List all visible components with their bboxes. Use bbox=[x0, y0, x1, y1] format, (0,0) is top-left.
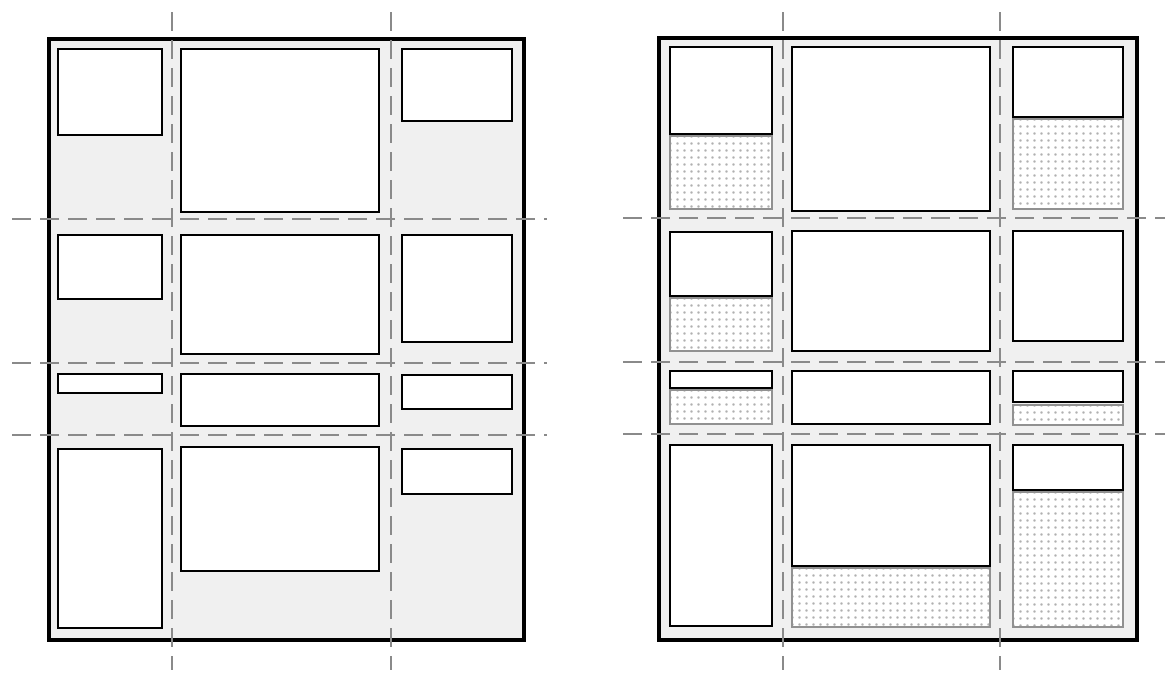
grid-line-left-horizontal-3 bbox=[12, 434, 547, 436]
grid-item-right-r2c2 bbox=[791, 230, 991, 352]
grid-item-left-r2c3 bbox=[401, 234, 513, 343]
grid-item-right-r3c2 bbox=[791, 370, 991, 425]
free-space-right-r4c2 bbox=[791, 567, 991, 628]
grid-line-left-vertical-2 bbox=[390, 12, 392, 670]
free-space-right-r1c3 bbox=[1012, 118, 1124, 210]
grid-item-right-r3c3 bbox=[1012, 370, 1124, 403]
grid-item-left-r2c1 bbox=[57, 234, 163, 300]
free-space-right-r3c1 bbox=[669, 389, 773, 425]
grid-item-right-r2c3 bbox=[1012, 230, 1124, 342]
grid-item-left-r4c1 bbox=[57, 448, 163, 629]
grid-line-left-vertical-1 bbox=[171, 12, 173, 670]
free-space-right-r1c1 bbox=[669, 135, 773, 210]
grid-line-left-horizontal-2 bbox=[12, 362, 547, 364]
grid-item-right-r4c1 bbox=[669, 444, 773, 627]
grid-line-right-vertical-1 bbox=[782, 12, 784, 670]
grid-line-left-horizontal-1 bbox=[12, 218, 547, 220]
grid-line-right-horizontal-2 bbox=[623, 361, 1165, 363]
grid-item-left-r4c3 bbox=[401, 448, 513, 495]
free-space-right-r4c3 bbox=[1012, 491, 1124, 628]
grid-item-right-r1c2 bbox=[791, 46, 991, 212]
grid-item-right-r4c2 bbox=[791, 444, 991, 567]
grid-item-left-r4c2 bbox=[180, 446, 380, 572]
grid-item-left-r3c3 bbox=[401, 374, 513, 410]
free-space-right-r2c1 bbox=[669, 297, 773, 352]
grid-item-left-r3c2 bbox=[180, 373, 380, 427]
grid-item-left-r1c2 bbox=[180, 48, 380, 213]
free-space-right-r3c3 bbox=[1012, 404, 1124, 426]
grid-item-right-r3c1 bbox=[669, 370, 773, 389]
grid-item-right-r1c3 bbox=[1012, 46, 1124, 118]
grid-line-right-vertical-2 bbox=[999, 12, 1001, 670]
grid-line-right-horizontal-3 bbox=[623, 433, 1165, 435]
grid-item-left-r1c3 bbox=[401, 48, 513, 122]
grid-line-right-horizontal-1 bbox=[623, 217, 1165, 219]
grid-item-left-r3c1 bbox=[57, 373, 163, 394]
grid-item-left-r1c1 bbox=[57, 48, 163, 136]
grid-item-left-r2c2 bbox=[180, 234, 380, 355]
grid-item-right-r4c3 bbox=[1012, 444, 1124, 491]
grid-item-right-r2c1 bbox=[669, 231, 773, 297]
figure-canvas bbox=[0, 0, 1171, 679]
grid-item-right-r1c1 bbox=[669, 46, 773, 135]
